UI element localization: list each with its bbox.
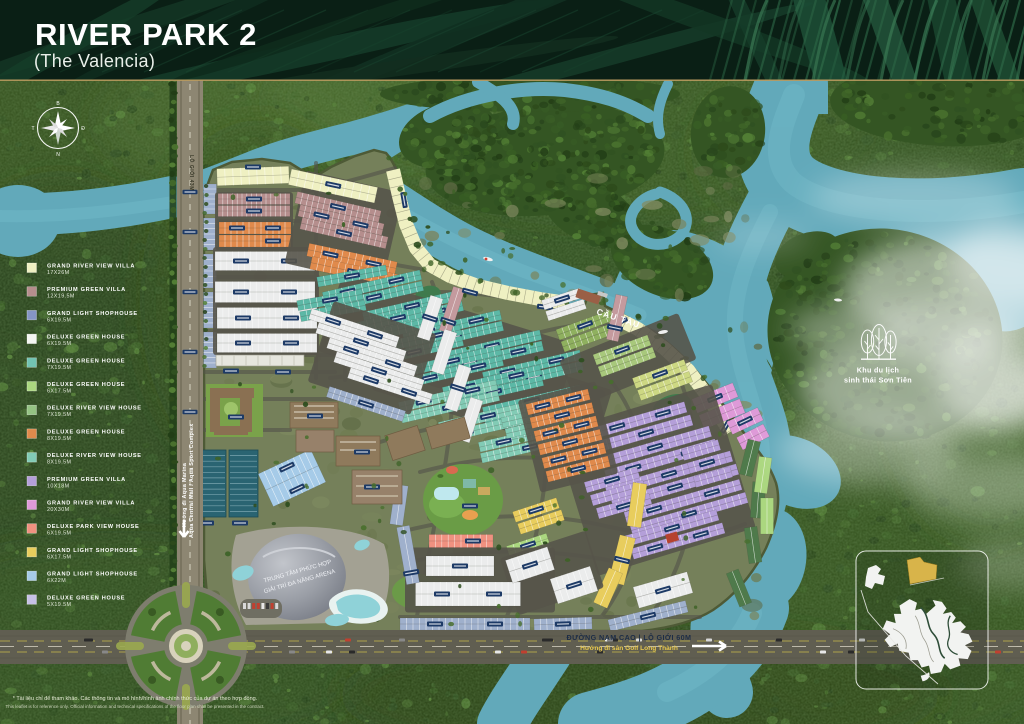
svg-text:DELUXE GREEN HOUSE: DELUXE GREEN HOUSE: [47, 595, 125, 601]
svg-text:GRAND LIGHT SHOPHOUSE: GRAND LIGHT SHOPHOUSE: [47, 572, 138, 578]
svg-text:Hướng đi sân Golf Long Thành: Hướng đi sân Golf Long Thành: [580, 645, 678, 652]
svg-text:* Tài liệu chỉ để tham khảo. C: * Tài liệu chỉ để tham khảo. Các thông t…: [13, 695, 258, 702]
svg-text:RIVER PARK 2: RIVER PARK 2: [35, 17, 257, 52]
svg-text:GRAND RIVER VIEW VILLA: GRAND RIVER VIEW VILLA: [47, 501, 135, 507]
svg-text:GRAND RIVER VIEW VILLA: GRAND RIVER VIEW VILLA: [47, 264, 135, 270]
svg-text:17X26M: 17X26M: [47, 270, 70, 276]
svg-text:sinh thái Sơn Tiên: sinh thái Sơn Tiên: [844, 376, 912, 385]
svg-text:Hướng đi Aqua Marina: Hướng đi Aqua Marina: [182, 462, 188, 527]
svg-text:12X19.5M: 12X19.5M: [47, 294, 75, 300]
svg-text:Aqua Central Mall / Aqua Sport: Aqua Central Mall / Aqua Sport Complex: [189, 423, 195, 538]
svg-text:GRAND LIGHT SHOPHOUSE: GRAND LIGHT SHOPHOUSE: [47, 311, 138, 317]
svg-text:6X17.5M: 6X17.5M: [47, 554, 71, 560]
svg-text:6X17.5M: 6X17.5M: [47, 389, 71, 395]
svg-text:(The Valencia): (The Valencia): [34, 51, 155, 71]
svg-text:DELUXE RIVER VIEW HOUSE: DELUXE RIVER VIEW HOUSE: [47, 453, 142, 459]
svg-text:N: N: [56, 152, 60, 158]
svg-text:PREMIUM GREEN VILLA: PREMIUM GREEN VILLA: [47, 477, 126, 483]
svg-text:T: T: [31, 126, 34, 132]
svg-text:DELUXE GREEN HOUSE: DELUXE GREEN HOUSE: [47, 382, 125, 388]
svg-text:6X19.5M: 6X19.5M: [47, 531, 71, 537]
svg-text:7X19.5M: 7X19.5M: [47, 365, 71, 371]
svg-text:20X30M: 20X30M: [47, 507, 70, 513]
svg-text:DELUXE GREEN HOUSE: DELUXE GREEN HOUSE: [47, 358, 125, 364]
svg-text:LỘ GIỚI 43M: LỘ GIỚI 43M: [188, 155, 196, 191]
svg-text:5X19.5M: 5X19.5M: [47, 602, 71, 608]
svg-text:DELUXE GREEN HOUSE: DELUXE GREEN HOUSE: [47, 335, 125, 341]
svg-text:10X18M: 10X18M: [47, 483, 70, 489]
svg-text:DELUXE PARK VIEW HOUSE: DELUXE PARK VIEW HOUSE: [47, 524, 139, 530]
svg-text:This leaflet is for reference: This leaflet is for reference only. Offi…: [6, 704, 265, 709]
svg-text:8X19.5M: 8X19.5M: [47, 436, 71, 442]
svg-text:DELUXE GREEN HOUSE: DELUXE GREEN HOUSE: [47, 429, 125, 435]
svg-text:6X19.5M: 6X19.5M: [47, 317, 71, 323]
svg-text:PREMIUM GREEN VILLA: PREMIUM GREEN VILLA: [47, 287, 126, 293]
svg-text:GRAND LIGHT SHOPHOUSE: GRAND LIGHT SHOPHOUSE: [47, 548, 138, 554]
svg-text:7X19.5M: 7X19.5M: [47, 412, 71, 418]
svg-text:Khu du lịch: Khu du lịch: [857, 366, 899, 375]
svg-text:6X22M: 6X22M: [47, 578, 66, 584]
svg-text:6X19.5M: 6X19.5M: [47, 341, 71, 347]
svg-text:ĐƯỜNG NAM CAO | LỘ GIỚI 60M: ĐƯỜNG NAM CAO | LỘ GIỚI 60M: [567, 633, 692, 642]
svg-text:Đ: Đ: [81, 126, 85, 132]
svg-text:8X19.5M: 8X19.5M: [47, 460, 71, 466]
svg-text:DELUXE RIVER VIEW HOUSE: DELUXE RIVER VIEW HOUSE: [47, 406, 142, 412]
